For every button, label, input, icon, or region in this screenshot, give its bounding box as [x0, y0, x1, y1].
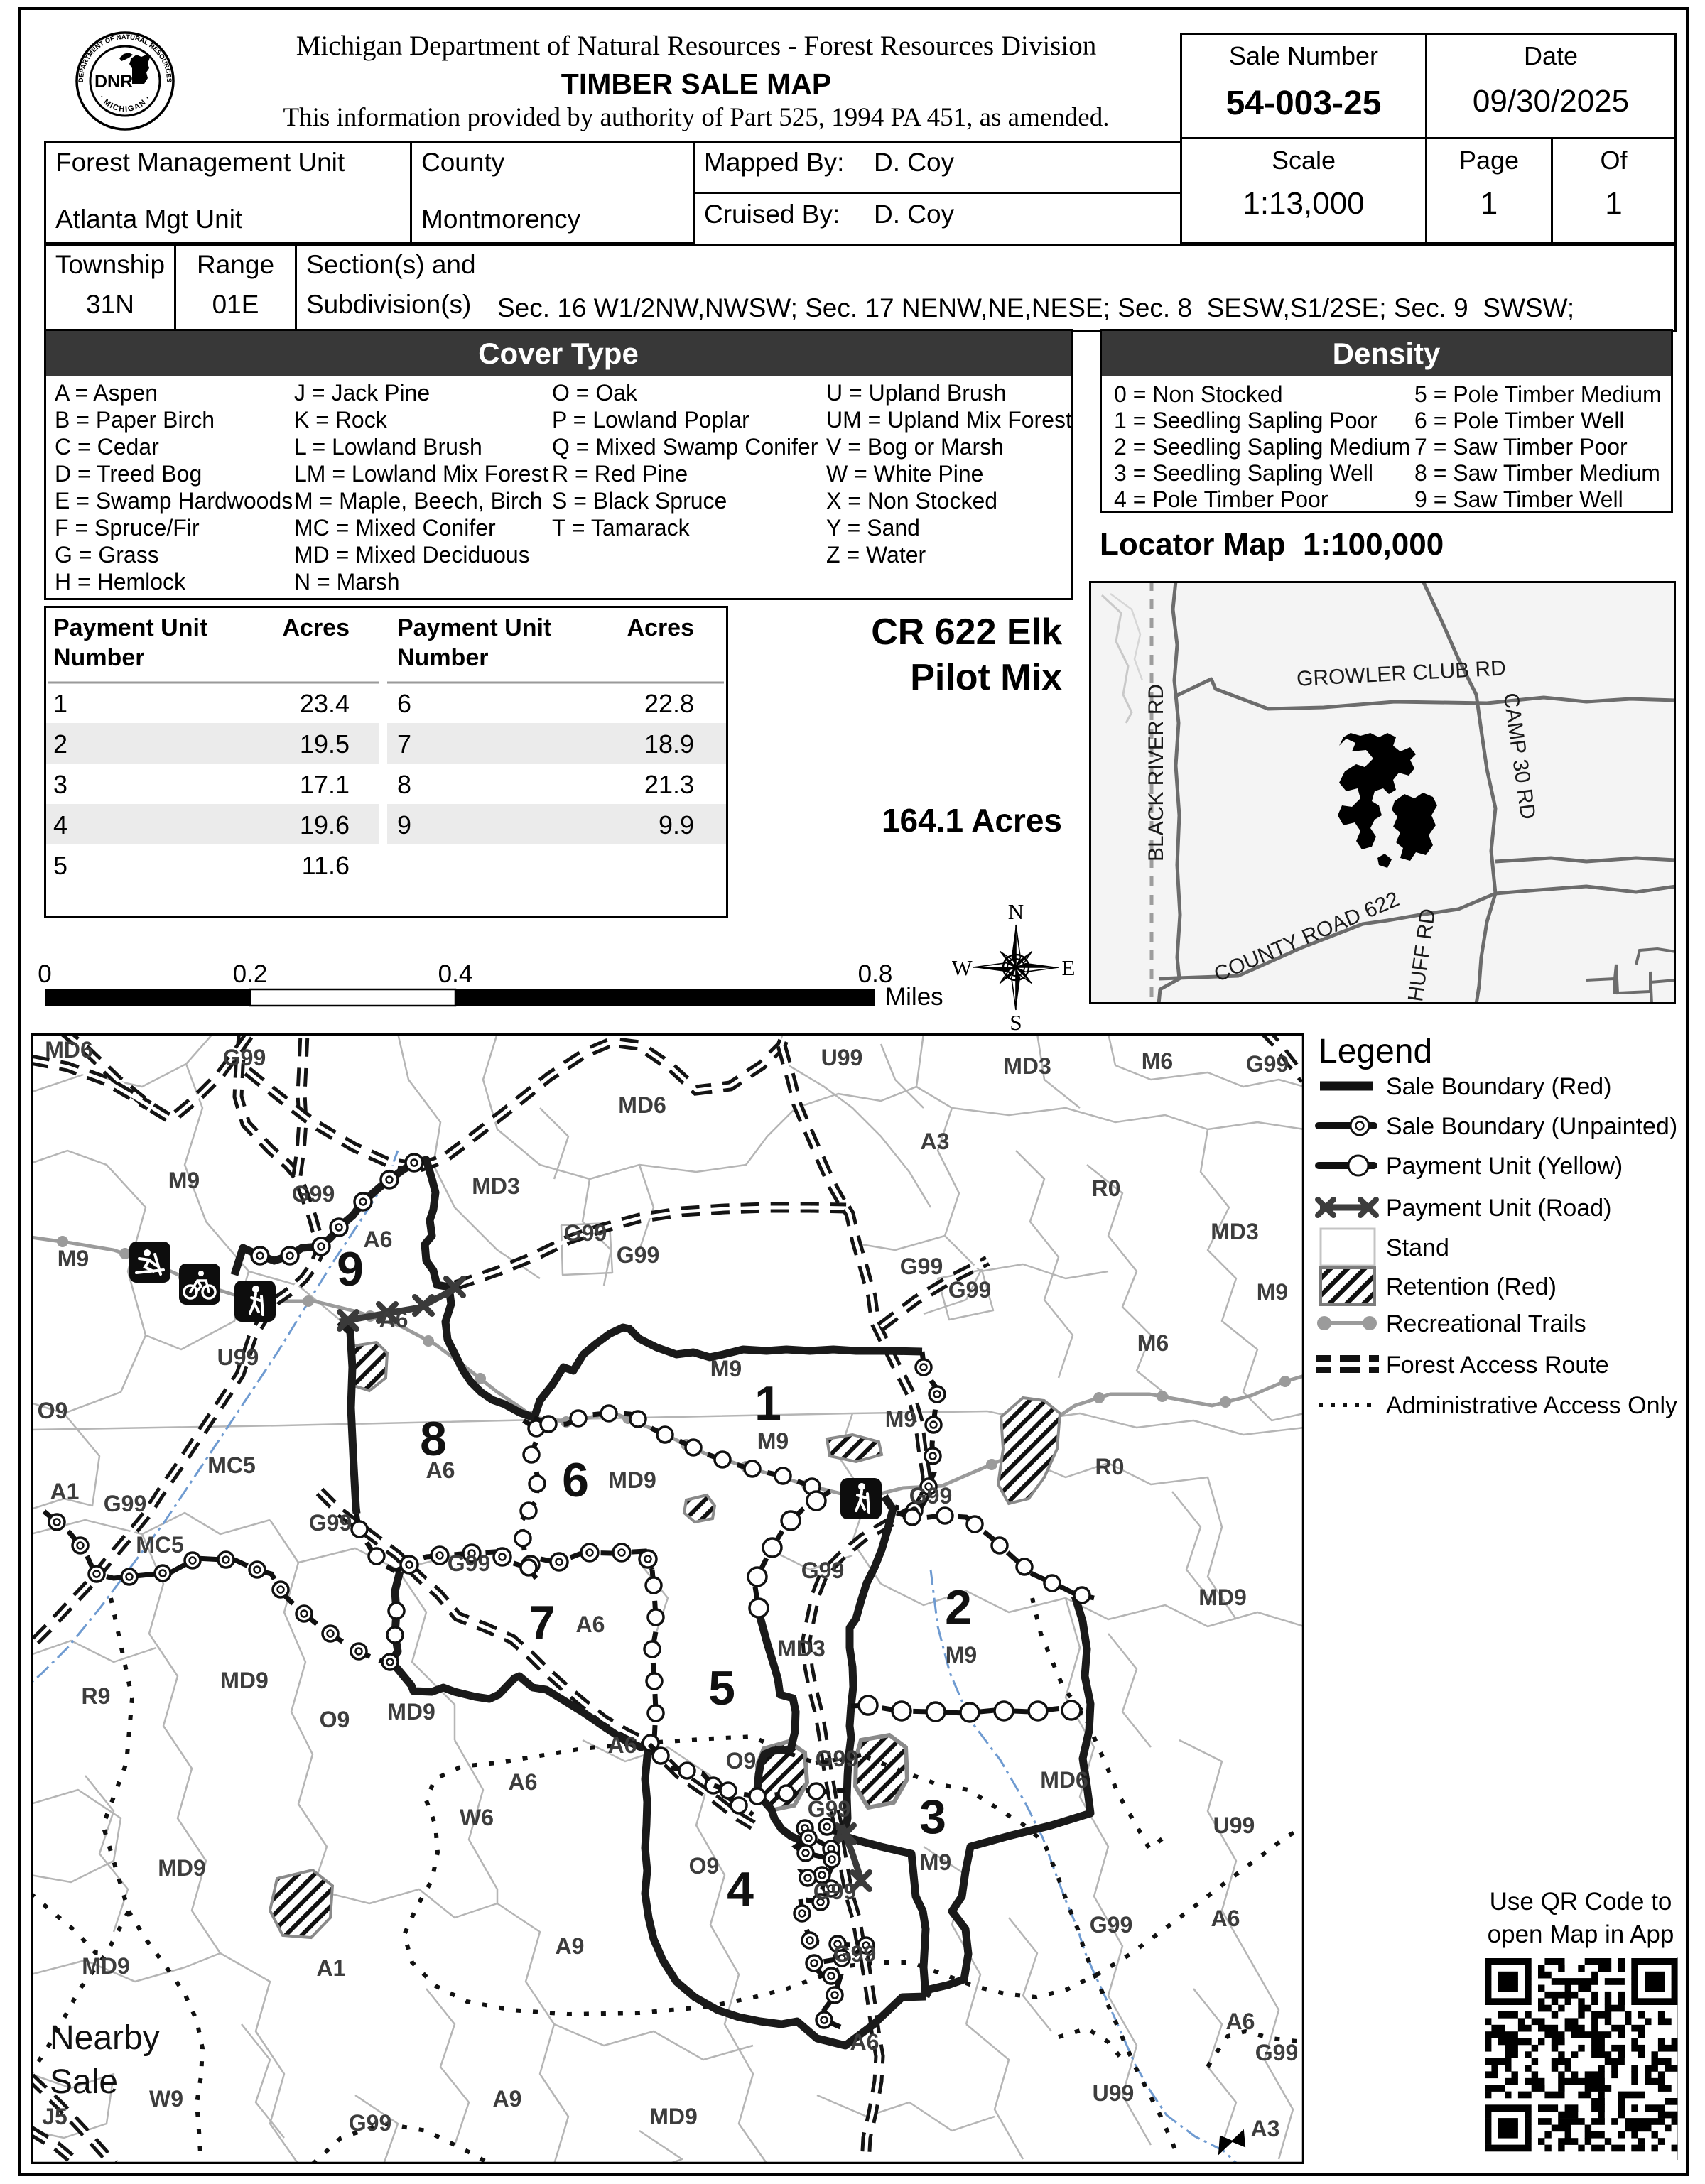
svg-text:A6: A6 [576, 1612, 605, 1637]
svg-text:G99: G99 [223, 1045, 266, 1070]
svg-text:3: 3 [53, 770, 67, 799]
svg-text:Retention (Red): Retention (Red) [1386, 1273, 1557, 1300]
svg-text:M6: M6 [1137, 1330, 1169, 1356]
svg-text:6: 6 [562, 1453, 589, 1507]
svg-text:Acres: Acres [282, 614, 350, 641]
svg-text:Nearby: Nearby [50, 2019, 160, 2057]
svg-text:MD6: MD6 [618, 1092, 666, 1118]
svg-text:Payment Unit: Payment Unit [397, 614, 551, 641]
svg-text:G99: G99 [909, 1483, 952, 1509]
svg-text:G99: G99 [1090, 1912, 1132, 1938]
svg-text:M9: M9 [946, 1642, 977, 1668]
svg-text:M9: M9 [1257, 1279, 1288, 1305]
svg-text:6: 6 [397, 689, 411, 718]
svg-text:S: S [1010, 1010, 1022, 1033]
svg-text:MD9: MD9 [387, 1699, 435, 1724]
svg-text:MD9: MD9 [158, 1855, 206, 1881]
svg-text:A6: A6 [1211, 1906, 1240, 1931]
svg-text:5: 5 [708, 1661, 735, 1715]
svg-text:MD3: MD3 [1211, 1219, 1259, 1244]
svg-text:M9: M9 [885, 1406, 916, 1432]
svg-text:MD9: MD9 [220, 1668, 269, 1693]
svg-text:A6: A6 [1226, 2009, 1255, 2034]
svg-text:9: 9 [397, 810, 411, 840]
svg-text:G99: G99 [833, 1941, 876, 1967]
svg-text:19.5: 19.5 [300, 729, 350, 759]
svg-text:G99: G99 [816, 1746, 858, 1771]
svg-text:G99: G99 [292, 1181, 335, 1207]
svg-text:A3: A3 [1251, 2116, 1280, 2141]
svg-text:R0: R0 [1092, 1175, 1121, 1201]
svg-text:MD6: MD6 [1040, 1767, 1088, 1793]
svg-text:A1: A1 [50, 1479, 80, 1504]
svg-text:2: 2 [53, 729, 67, 759]
svg-text:9.9: 9.9 [659, 810, 694, 840]
svg-text:G99: G99 [1246, 1051, 1289, 1077]
svg-text:2: 2 [945, 1580, 972, 1634]
svg-text:G99: G99 [617, 1242, 659, 1268]
svg-text:MD3: MD3 [472, 1173, 520, 1199]
svg-text:O9: O9 [38, 1398, 68, 1423]
svg-text:1: 1 [754, 1376, 781, 1430]
svg-text:Payment Unit: Payment Unit [53, 614, 207, 641]
svg-text:A6: A6 [608, 1732, 637, 1758]
svg-text:G99: G99 [900, 1254, 943, 1279]
svg-text:8: 8 [420, 1412, 447, 1466]
svg-text:23.4: 23.4 [300, 689, 350, 718]
svg-text:A3: A3 [921, 1129, 950, 1154]
svg-text:0.4: 0.4 [438, 962, 473, 988]
svg-text:A6: A6 [509, 1769, 538, 1795]
svg-text:Payment Unit (Road): Payment Unit (Road) [1386, 1195, 1611, 1222]
svg-text:0: 0 [38, 962, 51, 988]
svg-text:MD3: MD3 [1003, 1053, 1051, 1079]
svg-text:G99: G99 [801, 1558, 844, 1583]
svg-text:O9: O9 [320, 1707, 350, 1732]
svg-text:U99: U99 [1093, 2080, 1135, 2106]
svg-text:U99: U99 [1213, 1813, 1255, 1838]
svg-text:4: 4 [53, 810, 67, 840]
svg-text:Number: Number [53, 644, 144, 671]
svg-text:Legend: Legend [1319, 1033, 1432, 1070]
svg-text:M9: M9 [168, 1168, 200, 1193]
svg-text:G99: G99 [1255, 2040, 1298, 2065]
svg-text:Forest Access Route: Forest Access Route [1386, 1352, 1609, 1379]
svg-text:N: N [1008, 902, 1024, 924]
svg-text:G99: G99 [104, 1491, 146, 1516]
svg-text:5: 5 [53, 851, 67, 880]
svg-text:G99: G99 [948, 1277, 991, 1303]
svg-text:M9: M9 [58, 1246, 89, 1271]
svg-text:Miles: Miles [885, 983, 943, 1011]
svg-text:G99: G99 [808, 1796, 850, 1822]
svg-text:O9: O9 [689, 1853, 720, 1879]
svg-text:R9: R9 [82, 1683, 111, 1709]
svg-text:17.1: 17.1 [300, 770, 350, 799]
svg-text:J5: J5 [42, 2104, 67, 2129]
svg-text:0.2: 0.2 [233, 962, 268, 988]
svg-text:A6: A6 [850, 2029, 879, 2055]
svg-text:7: 7 [397, 729, 411, 759]
svg-text:Stand: Stand [1386, 1234, 1449, 1261]
svg-text:G99: G99 [349, 2110, 391, 2136]
svg-text:11.6: 11.6 [302, 851, 350, 880]
svg-text:G99: G99 [564, 1220, 607, 1246]
svg-text:Payment Unit (Yellow): Payment Unit (Yellow) [1386, 1153, 1623, 1180]
svg-text:4: 4 [727, 1862, 754, 1916]
svg-text:19.6: 19.6 [300, 810, 350, 840]
svg-text:W9: W9 [149, 2086, 183, 2112]
svg-text:U99: U99 [821, 1045, 863, 1070]
svg-text:22.8: 22.8 [644, 689, 694, 718]
svg-text:Acres: Acres [627, 614, 694, 641]
svg-text:E: E [1062, 955, 1076, 980]
svg-text:3: 3 [919, 1790, 946, 1844]
svg-text:W6: W6 [460, 1805, 494, 1830]
svg-text:MD9: MD9 [82, 1953, 130, 1979]
svg-text:R0: R0 [1095, 1454, 1125, 1479]
svg-text:G99: G99 [813, 1879, 856, 1904]
svg-text:M9: M9 [920, 1849, 951, 1875]
svg-text:M6: M6 [1142, 1048, 1173, 1074]
svg-text:Sale: Sale [50, 2063, 118, 2101]
svg-text:7: 7 [529, 1596, 556, 1650]
svg-text:Number: Number [397, 644, 488, 671]
svg-text:8: 8 [397, 770, 411, 799]
svg-text:18.9: 18.9 [644, 729, 694, 759]
svg-text:A9: A9 [556, 1933, 585, 1959]
svg-text:A9: A9 [493, 2086, 522, 2112]
svg-text:M9: M9 [757, 1428, 789, 1454]
svg-text:G99: G99 [448, 1550, 490, 1576]
svg-text:O9: O9 [726, 1748, 757, 1773]
svg-text:MC5: MC5 [207, 1452, 256, 1478]
svg-text:DNR: DNR [94, 72, 133, 92]
svg-text:MD3: MD3 [777, 1636, 826, 1661]
svg-text:Sale Boundary (Unpainted): Sale Boundary (Unpainted) [1386, 1113, 1677, 1140]
svg-text:MD9: MD9 [1198, 1585, 1247, 1610]
svg-text:Recreational Trails: Recreational Trails [1386, 1310, 1586, 1337]
svg-text:Administrative Access Only: Administrative Access Only [1386, 1392, 1677, 1419]
svg-text:BLACK RIVER RD: BLACK RIVER RD [1144, 684, 1168, 862]
svg-text:9: 9 [337, 1242, 364, 1296]
svg-text:Sale Boundary (Red): Sale Boundary (Red) [1386, 1073, 1612, 1100]
svg-text:1: 1 [53, 689, 67, 718]
svg-text:MD6: MD6 [45, 1037, 93, 1063]
svg-text:A6: A6 [379, 1307, 408, 1332]
svg-text:21.3: 21.3 [644, 770, 694, 799]
svg-text:U99: U99 [217, 1344, 259, 1370]
svg-text:MC5: MC5 [136, 1532, 184, 1558]
svg-text:MD9: MD9 [649, 2104, 698, 2129]
svg-text:M9: M9 [710, 1356, 742, 1381]
svg-text:A1: A1 [317, 1955, 346, 1981]
svg-text:A6: A6 [364, 1227, 393, 1252]
svg-text:G99: G99 [309, 1510, 352, 1536]
svg-text:MD9: MD9 [608, 1467, 656, 1493]
